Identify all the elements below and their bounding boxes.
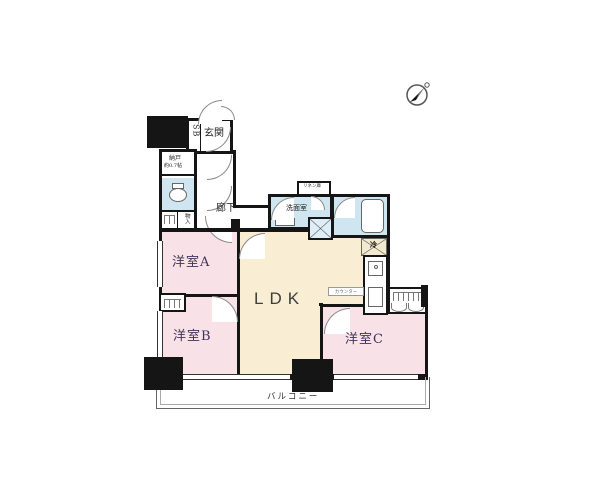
column-top-left [147, 116, 188, 148]
hanger-icon [393, 292, 422, 301]
counter-label: カウンター [335, 289, 358, 295]
wall-nub [231, 219, 240, 232]
linen-label: リネン庫 [303, 185, 321, 190]
toilet-icon [169, 188, 187, 202]
counter-shelf: カウンター [328, 287, 364, 296]
closet-room-ab [159, 293, 186, 312]
washing-machine-space [308, 217, 333, 240]
kitchen-counter [363, 255, 388, 315]
entrance-door-arc [221, 106, 235, 120]
room-b-label: 洋室B [173, 330, 212, 344]
storage-size-label: 約0.7帖 [164, 164, 182, 169]
closet-label: 物入 [183, 213, 189, 224]
floor-plan: カウンター 玄関 SB 納戸 約0.7帖 廊下 物入 リネン庫 洗面室 冷 [0, 0, 600, 497]
washroom-label: 洗面室 [286, 205, 307, 212]
entrance-label: 玄関 [204, 129, 224, 140]
column-right-closet [421, 285, 428, 307]
compass-north-icon [403, 79, 433, 109]
bathtub-icon [361, 199, 384, 233]
closet-cell [162, 212, 178, 228]
column-bottom-left [144, 357, 183, 390]
room-a-label: 洋室A [172, 256, 210, 270]
room-c-label: 洋室C [345, 333, 384, 347]
kitchen-stove-icon [368, 287, 383, 307]
entrance-door-arc [198, 100, 222, 124]
refrigerator-label: 冷 [370, 241, 377, 248]
toilet-tank-icon [172, 183, 184, 189]
window-room-b [157, 311, 163, 363]
hanger-icon [164, 299, 181, 308]
hanger-icon [164, 215, 175, 224]
balcony-label: バルコニー [267, 393, 319, 402]
faucet-icon [374, 265, 378, 269]
wall-strip [159, 228, 270, 232]
window-room-a [157, 241, 163, 287]
shoe-box-label: SB [191, 124, 199, 137]
corridor-label: 廊下 [216, 204, 236, 215]
closet-curtain-icon [391, 303, 407, 312]
storage-label: 納戸 [169, 156, 181, 162]
column-bottom-middle [292, 359, 333, 392]
ldk-label: LDK [254, 290, 305, 308]
